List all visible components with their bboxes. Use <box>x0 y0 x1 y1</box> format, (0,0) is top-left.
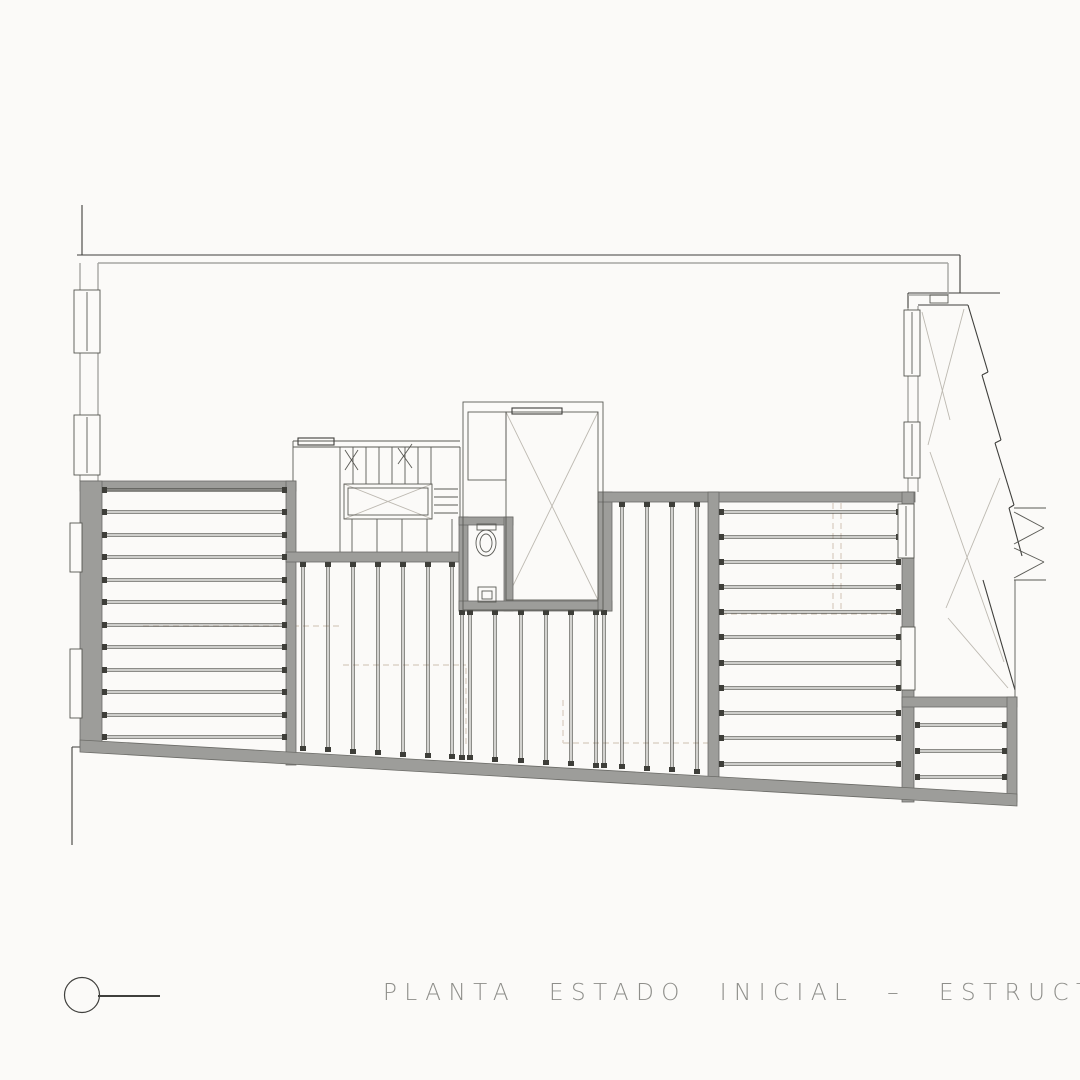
plan-line <box>1009 505 1014 508</box>
joist-end-cap <box>325 747 331 752</box>
joist-end-cap <box>669 767 675 772</box>
wall-segment <box>459 601 612 611</box>
floor-plan-svg <box>0 0 1080 1080</box>
plan-line <box>968 305 988 372</box>
joist-end-cap <box>350 749 356 754</box>
plan-line <box>995 440 1001 443</box>
joist-end-cap <box>282 712 287 718</box>
joist-end-cap <box>719 584 724 590</box>
joist-end-cap <box>719 710 724 716</box>
orientation-marker-icon <box>60 973 175 1019</box>
joist-end-cap <box>102 532 107 538</box>
wall-segment <box>598 492 915 502</box>
joist-end-cap <box>896 559 901 565</box>
joist-end-cap <box>282 667 287 673</box>
joist-end-cap <box>568 761 574 766</box>
joist-end-cap <box>543 760 549 765</box>
plan-line <box>948 618 1008 688</box>
joist-end-cap <box>568 610 574 615</box>
joist-end-cap <box>492 757 498 762</box>
joist-end-cap <box>467 755 473 760</box>
joist-end-cap <box>467 610 473 615</box>
joist-end-cap <box>282 577 287 583</box>
joist-end-cap <box>601 763 607 768</box>
joist-end-cap <box>915 748 920 754</box>
window-opening <box>70 523 82 572</box>
joist-end-cap <box>375 562 381 567</box>
plan-detail-rect <box>478 587 496 602</box>
joist-end-cap <box>102 712 107 718</box>
wall-segment <box>80 481 296 491</box>
joist-end-cap <box>282 532 287 538</box>
joist-end-cap <box>300 746 306 751</box>
joist-end-cap <box>719 761 724 767</box>
joist-end-cap <box>719 634 724 640</box>
plan-detail-rect <box>468 412 506 480</box>
joist-end-cap <box>896 609 901 615</box>
joist-end-cap <box>102 622 107 628</box>
joist-end-cap <box>669 502 675 507</box>
joist-end-cap <box>543 610 549 615</box>
joist-end-cap <box>896 660 901 666</box>
joist-end-cap <box>300 562 306 567</box>
plan-detail-rect <box>463 402 603 610</box>
joist-end-cap <box>449 562 455 567</box>
joist-end-cap <box>719 609 724 615</box>
joist-end-cap <box>282 554 287 560</box>
joist-end-cap <box>282 734 287 740</box>
joist-end-cap <box>896 761 901 767</box>
window-opening <box>901 627 915 690</box>
joist-end-cap <box>325 562 331 567</box>
joist-end-cap <box>400 562 406 567</box>
wall-segment <box>902 697 1017 707</box>
joist-end-cap <box>719 685 724 691</box>
joist-end-cap <box>719 509 724 515</box>
joist-end-cap <box>644 502 650 507</box>
joist-end-cap <box>896 634 901 640</box>
plan-line <box>982 375 1001 440</box>
bottom-slanted-wall <box>80 740 1017 806</box>
joist-end-cap <box>719 559 724 565</box>
joist-end-cap <box>619 502 625 507</box>
wall-segment <box>80 481 102 748</box>
joist-end-cap <box>282 509 287 515</box>
joist-end-cap <box>492 610 498 615</box>
joist-end-cap <box>102 509 107 515</box>
joist-end-cap <box>400 752 406 757</box>
joist-end-cap <box>102 734 107 740</box>
joist-end-cap <box>518 610 524 615</box>
plan-line <box>928 309 964 445</box>
joist-end-cap <box>102 599 107 605</box>
plan-line <box>1014 548 1044 562</box>
plan-line <box>1014 562 1044 578</box>
toilet-fixture <box>480 534 492 552</box>
joist-end-cap <box>102 644 107 650</box>
plan-detail-rect <box>482 591 492 599</box>
joist-end-cap <box>282 599 287 605</box>
joist-end-cap <box>593 610 599 615</box>
joist-end-cap <box>719 660 724 666</box>
plan-detail-rect <box>930 295 948 303</box>
joist-end-cap <box>350 562 356 567</box>
joist-end-cap <box>644 766 650 771</box>
joist-end-cap <box>896 735 901 741</box>
joist-end-cap <box>459 610 465 615</box>
plan-line <box>922 312 950 420</box>
plan-line <box>995 443 1014 505</box>
joist-end-cap <box>915 774 920 780</box>
joist-end-cap <box>896 584 901 590</box>
joist-end-cap <box>1002 722 1007 728</box>
joist-end-cap <box>282 689 287 695</box>
wall-segment <box>708 492 719 784</box>
joist-end-cap <box>425 753 431 758</box>
joist-end-cap <box>619 764 625 769</box>
joist-end-cap <box>282 487 287 493</box>
joist-end-cap <box>449 754 455 759</box>
joist-end-cap <box>1002 774 1007 780</box>
plan-line <box>1014 512 1044 528</box>
wall-segment <box>286 552 466 562</box>
plan-line <box>982 372 988 375</box>
joist-end-cap <box>282 622 287 628</box>
window-opening <box>70 649 82 718</box>
joist-end-cap <box>719 735 724 741</box>
wall-segment <box>1007 697 1017 802</box>
joist-end-cap <box>719 534 724 540</box>
joist-end-cap <box>1002 748 1007 754</box>
joist-end-cap <box>102 554 107 560</box>
joist-end-cap <box>425 562 431 567</box>
plan-detail-rect <box>512 408 562 414</box>
plan-line <box>946 478 1000 608</box>
joist-end-cap <box>102 667 107 673</box>
wall-segment <box>598 492 612 611</box>
plan-line <box>1014 528 1044 544</box>
joist-end-cap <box>518 758 524 763</box>
plan-detail-rect <box>298 438 334 445</box>
joist-end-cap <box>102 487 107 493</box>
wall-segment <box>504 517 513 611</box>
wall-segment <box>459 517 468 611</box>
joist-end-cap <box>375 750 381 755</box>
joist-end-cap <box>593 763 599 768</box>
joist-end-cap <box>694 769 700 774</box>
joist-end-cap <box>102 689 107 695</box>
plan-line <box>983 580 1015 690</box>
drawing-title: PLANTA ESTADO INICIAL – ESTRUCTURA <box>383 980 1043 1006</box>
floor-plan-canvas <box>0 0 1080 1080</box>
joist-end-cap <box>896 710 901 716</box>
joist-end-cap <box>601 610 607 615</box>
joist-end-cap <box>282 644 287 650</box>
joist-end-cap <box>102 577 107 583</box>
joist-end-cap <box>694 502 700 507</box>
joist-end-cap <box>896 685 901 691</box>
wall-segment <box>286 481 296 765</box>
joist-end-cap <box>915 722 920 728</box>
joist-end-cap <box>459 755 465 760</box>
